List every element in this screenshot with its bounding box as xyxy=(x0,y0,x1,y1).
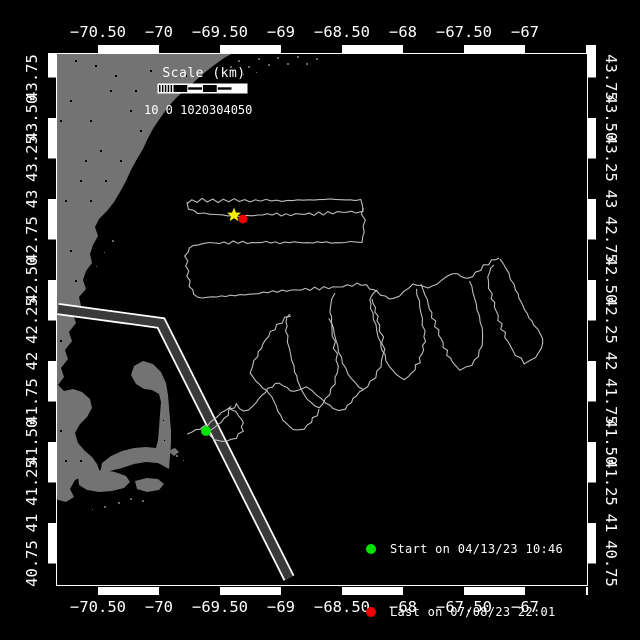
lat-tick-right: 42 xyxy=(602,352,620,371)
legend-item-start: Start on 04/13/23 10:46 xyxy=(362,536,586,561)
lat-tick-right: 43.25 xyxy=(602,135,620,182)
lat-tick-right: 41.50 xyxy=(602,419,620,466)
last-dot-icon xyxy=(362,603,380,621)
start-marker[interactable] xyxy=(201,426,211,436)
glider-track xyxy=(488,259,543,364)
glider-track xyxy=(250,316,319,430)
lon-tick-top: −67.50 xyxy=(436,23,492,41)
lon-tick-bottom: −69.50 xyxy=(192,598,248,616)
lat-tick-right: 43 xyxy=(602,190,620,209)
lon-tick-bottom: −70 xyxy=(145,598,173,616)
lat-tick-right: 43.75 xyxy=(602,54,620,101)
lon-tick-bottom: −70.50 xyxy=(70,598,126,616)
lat-tick-right: 40.75 xyxy=(602,540,620,587)
glider-track xyxy=(187,198,363,216)
lon-tick-top: −69 xyxy=(267,23,295,41)
lat-tick-left: 41 xyxy=(23,514,41,533)
map-window: −70.50−70.50−70−70−69.50−69.50−69−69−68.… xyxy=(0,0,640,640)
lat-tick-left: 42 xyxy=(23,352,41,371)
lon-tick-bottom: −69 xyxy=(267,598,295,616)
lat-tick-left: 41.75 xyxy=(23,378,41,425)
lat-tick-right: 41 xyxy=(602,514,620,533)
glider-track xyxy=(421,281,483,370)
scale-bar-ticks: 10 0 1020304050 xyxy=(144,103,252,117)
lat-tick-right: 42.75 xyxy=(602,216,620,263)
glider-track xyxy=(185,208,499,299)
lon-tick-top: −68.50 xyxy=(314,23,370,41)
lon-tick-top: −70.50 xyxy=(70,23,126,41)
lat-tick-left: 42.75 xyxy=(23,216,41,263)
start-dot-icon xyxy=(362,540,380,558)
lat-tick-left: 43.75 xyxy=(23,54,41,101)
glider-track-layer xyxy=(185,198,543,441)
lon-tick-top: −69.50 xyxy=(192,23,248,41)
lon-tick-top: −68 xyxy=(389,23,417,41)
shipping-lane xyxy=(58,309,289,578)
legend: Start on 04/13/23 10:46 Last on 07/08/23… xyxy=(362,498,586,640)
legend-last-label: Last on 07/08/23 22:01 xyxy=(390,605,556,619)
glider-track xyxy=(286,314,339,408)
last-marker[interactable] xyxy=(239,215,248,224)
lat-tick-right: 42.25 xyxy=(602,297,620,344)
lat-tick-left: 40.75 xyxy=(23,540,41,587)
glider-track xyxy=(330,293,385,390)
scale-bar xyxy=(158,84,248,94)
scale-bar-title: Scale (km) xyxy=(148,66,260,81)
legend-start-label: Start on 04/13/23 10:46 xyxy=(390,542,563,556)
lon-tick-top: −70 xyxy=(145,23,173,41)
lon-tick-top: −67 xyxy=(511,23,539,41)
lat-tick-right: 42.50 xyxy=(602,257,620,304)
lat-tick-right: 41.75 xyxy=(602,378,620,425)
lat-tick-right: 43.50 xyxy=(602,95,620,142)
legend-item-last: Last on 07/08/23 22:01 xyxy=(362,599,586,624)
lat-tick-left: 43 xyxy=(23,190,41,209)
lat-tick-right: 41.25 xyxy=(602,459,620,506)
glider-track xyxy=(370,289,426,380)
